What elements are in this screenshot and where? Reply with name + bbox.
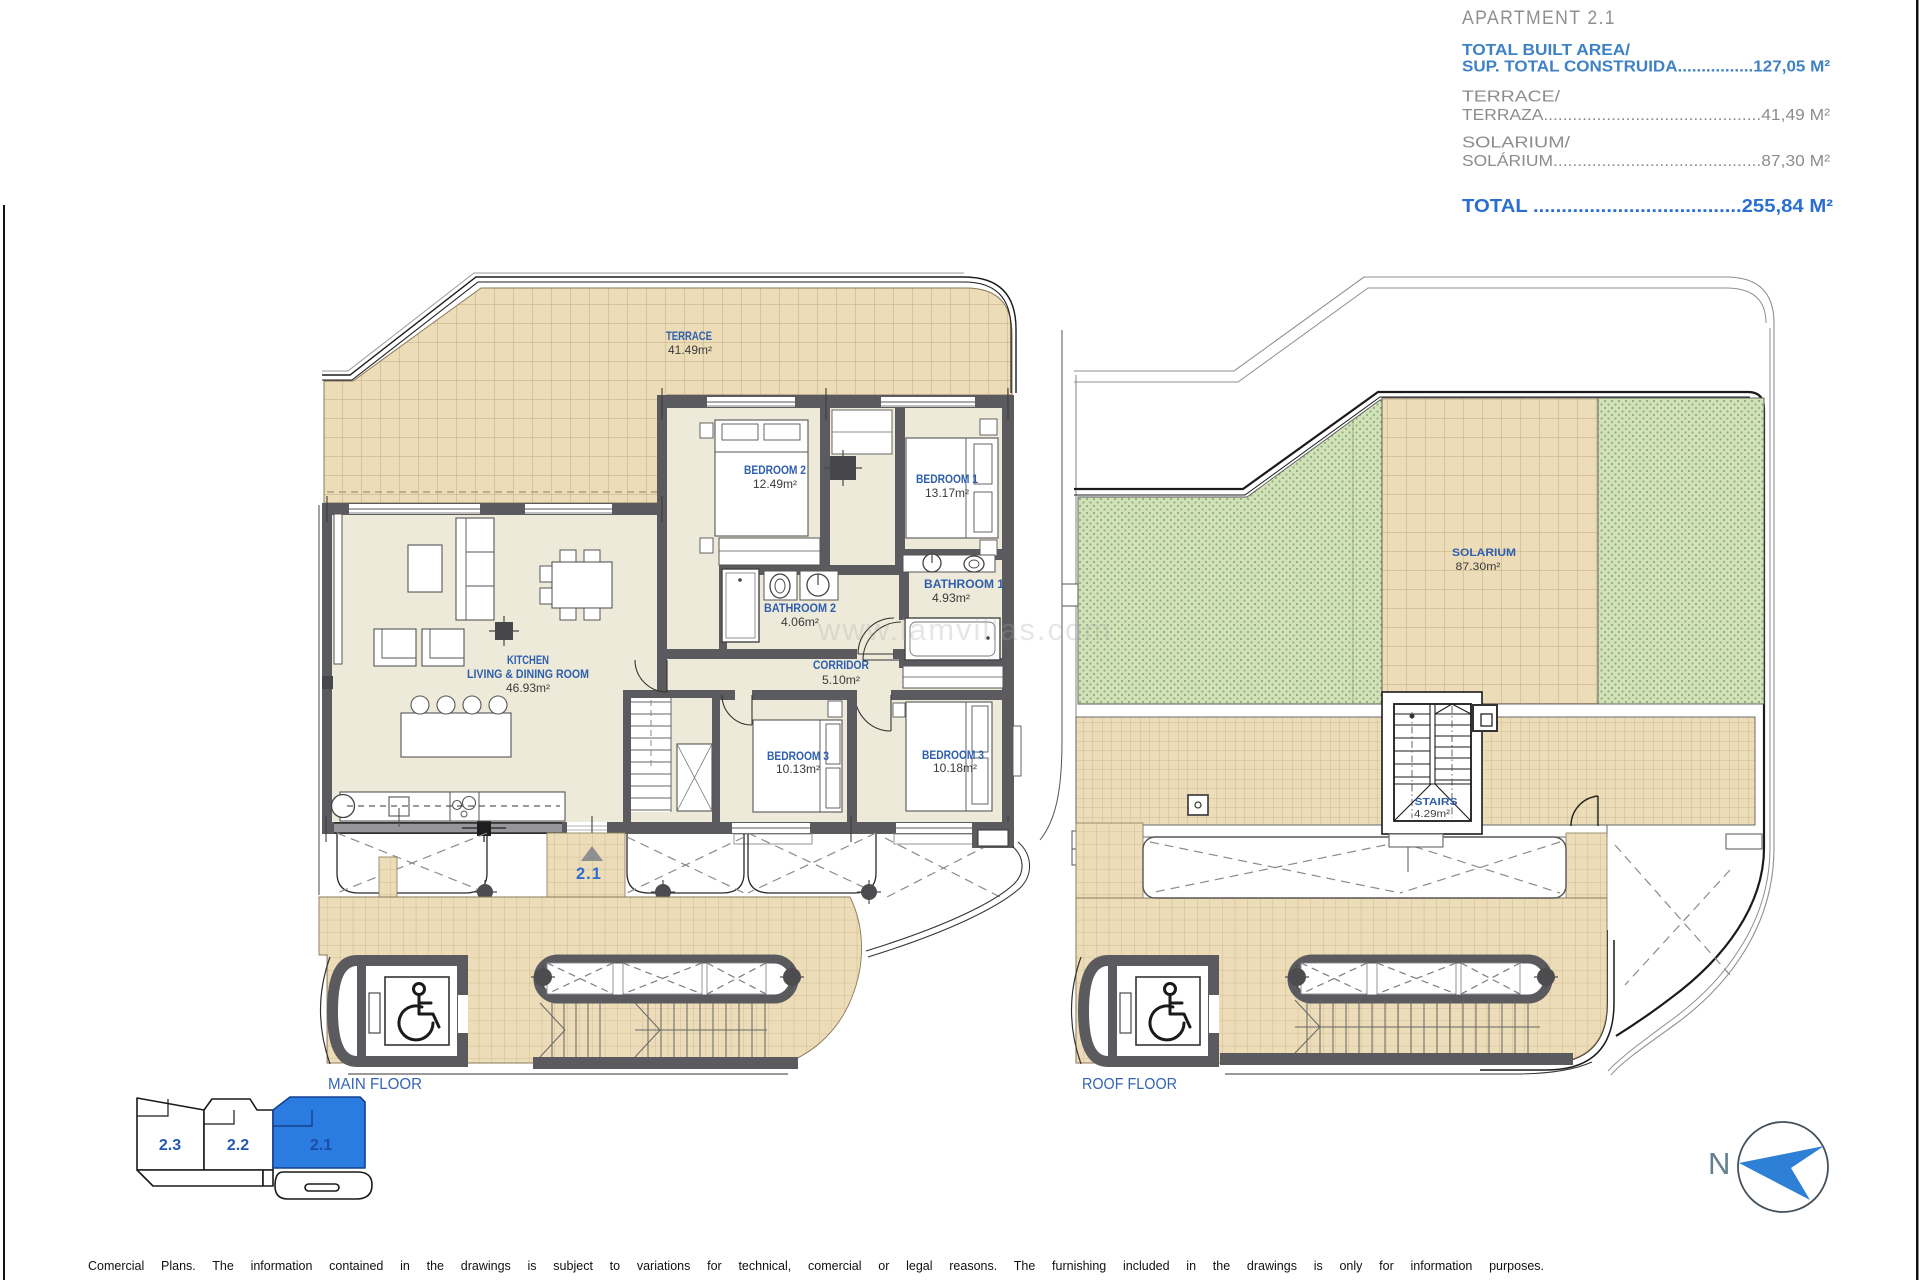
svg-text:APARTMENT 2.1: APARTMENT 2.1 <box>1462 8 1616 29</box>
svg-text:LIVING & DINING ROOM: LIVING & DINING ROOM <box>467 669 589 681</box>
svg-text:www.lamvillas.com: www.lamvillas.com <box>817 612 1112 647</box>
svg-text:CORRIDOR: CORRIDOR <box>813 660 870 672</box>
svg-text:2.1: 2.1 <box>310 1137 332 1154</box>
svg-text:2.3: 2.3 <box>159 1137 181 1154</box>
svg-text:TOTAL ........................: TOTAL ..................................… <box>1462 196 1833 216</box>
svg-text:87.30m²: 87.30m² <box>1456 561 1501 573</box>
svg-text:TERRACE: TERRACE <box>666 331 712 343</box>
svg-text:TOTAL BUILT AREA/: TOTAL BUILT AREA/ <box>1462 42 1631 59</box>
svg-text:ROOF FLOOR: ROOF FLOOR <box>1082 1076 1177 1093</box>
svg-text:4.93m²: 4.93m² <box>932 593 970 605</box>
svg-text:BEDROOM 3: BEDROOM 3 <box>922 750 984 762</box>
svg-text:BEDROOM 1: BEDROOM 1 <box>916 474 979 486</box>
svg-text:12.49m²: 12.49m² <box>753 479 797 491</box>
svg-text:BEDROOM 3: BEDROOM 3 <box>767 751 829 763</box>
svg-text:STAIRS: STAIRS <box>1415 796 1458 808</box>
svg-text:4.06m²: 4.06m² <box>781 617 819 629</box>
svg-text:41.49m²: 41.49m² <box>668 345 712 357</box>
svg-text:2.1: 2.1 <box>576 865 602 883</box>
svg-text:TERRACE/: TERRACE/ <box>1462 89 1561 106</box>
svg-text:10.13m²: 10.13m² <box>776 764 820 776</box>
svg-text:5.10m²: 5.10m² <box>822 675 860 687</box>
svg-text:10.18m²: 10.18m² <box>933 763 977 775</box>
svg-text:TERRAZA.......................: TERRAZA.................................… <box>1462 107 1831 124</box>
svg-text:2.2: 2.2 <box>227 1137 249 1154</box>
svg-text:SUP. TOTAL CONSTRUIDA.........: SUP. TOTAL CONSTRUIDA................127… <box>1462 59 1830 76</box>
svg-text:MAIN FLOOR: MAIN FLOOR <box>328 1076 422 1093</box>
svg-text:SOLARIUM: SOLARIUM <box>1452 547 1516 559</box>
svg-text:N: N <box>1708 1146 1730 1181</box>
svg-text:BEDROOM 2: BEDROOM 2 <box>744 465 806 477</box>
svg-text:46.93m²: 46.93m² <box>506 683 550 695</box>
svg-text:SOLARIUM/: SOLARIUM/ <box>1462 135 1571 152</box>
svg-text:KITCHEN: KITCHEN <box>507 655 549 667</box>
svg-text:4.29m²: 4.29m² <box>1414 808 1451 820</box>
svg-text:13.17m²: 13.17m² <box>925 488 969 500</box>
svg-text:BATHROOM 1: BATHROOM 1 <box>924 579 1005 591</box>
svg-text:SOLÁRIUM......................: SOLÁRIUM................................… <box>1462 151 1831 170</box>
